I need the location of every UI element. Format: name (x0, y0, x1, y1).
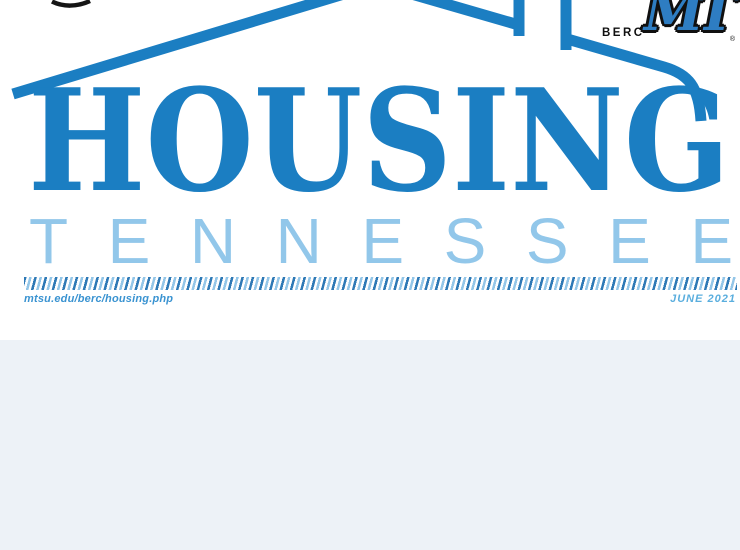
registered-mark: ® (730, 36, 735, 43)
issue-date: JUNE 2021 (670, 293, 736, 305)
site-url[interactable]: mtsu.edu/berc/housing.php (24, 293, 173, 305)
mt-logo-icon: MT (644, 0, 730, 38)
dashboard-panel: TENNESSEE DASHBOARD 1ST QUARTER 2021 (pe… (0, 340, 740, 550)
tennessee-subtitle: TENNESSEE (29, 205, 733, 277)
housing-title: HOUSING (28, 59, 730, 224)
berc-label: BERC (602, 27, 645, 39)
mtsu-berc-logo: MT BERC ® (600, 0, 732, 56)
cropped-swoosh-icon (52, 1, 90, 6)
hatch-divider (24, 277, 737, 290)
page: HOUSING TENNESSEE MT BERC ® mtsu.edu/ber… (0, 0, 740, 550)
